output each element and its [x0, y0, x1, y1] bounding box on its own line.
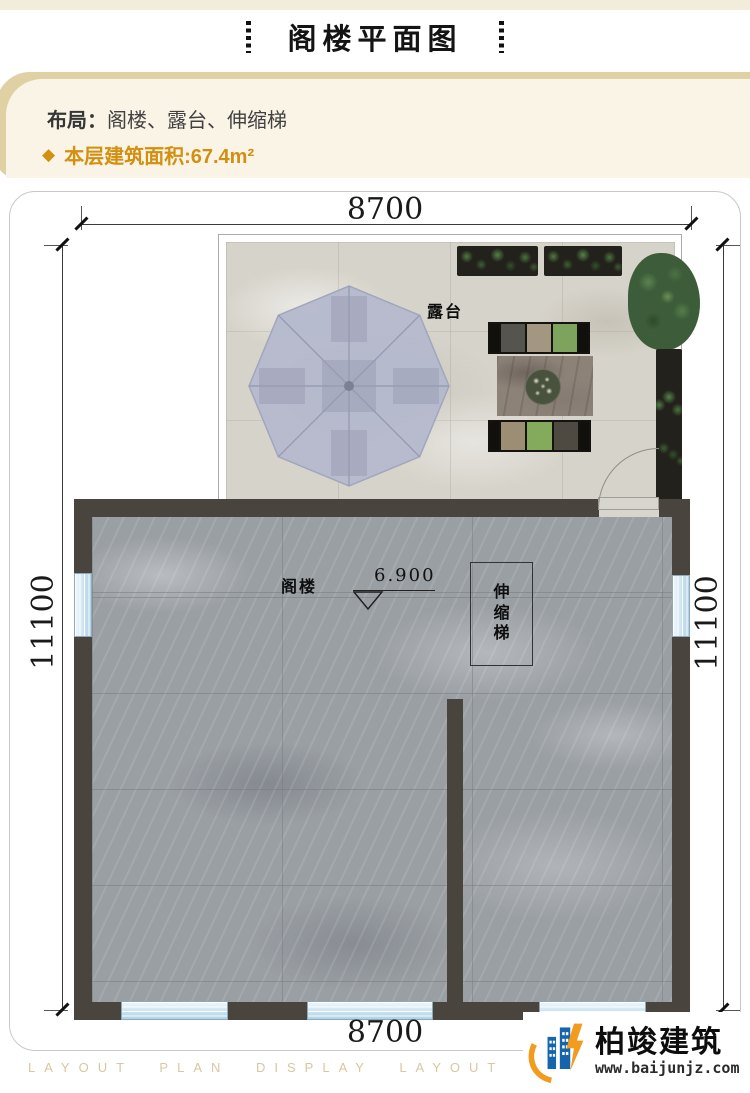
bench-cushion [554, 422, 578, 450]
layout-line: 布局：阁楼、露台、伸缩梯 [47, 104, 287, 133]
bench-cushion [501, 422, 525, 450]
bench-armrest [490, 324, 499, 352]
bench-armrest [580, 422, 589, 450]
bench-cushion [527, 422, 551, 450]
vertical-planter [656, 349, 682, 509]
top-accent-strip [0, 0, 750, 10]
extension-line [44, 1010, 68, 1011]
diamond-icon: ◆ [42, 146, 55, 163]
umbrella-canopy [249, 286, 449, 486]
page-title: 阁楼平面图 [287, 16, 462, 58]
interior-wall [447, 699, 463, 1002]
extension-line [691, 206, 692, 230]
terrace-label: 露台 [427, 298, 463, 322]
planter-box [544, 246, 622, 276]
attic-label: 阁楼 [281, 573, 317, 597]
brand-text: 柏竣建筑 www.baijunjz.com [595, 1027, 740, 1077]
window-bottom-1 [121, 1001, 228, 1020]
extension-line [81, 206, 82, 230]
layout-value: 阁楼、露台、伸缩梯 [107, 110, 287, 132]
dimension-top: 8700 [300, 192, 470, 227]
window-right [672, 575, 690, 637]
brand-logo[interactable]: 柏竣建筑 www.baijunjz.com [523, 1012, 750, 1092]
window-left [74, 573, 92, 637]
ladder-label: 伸缩梯 [493, 583, 511, 645]
terrace-bench [488, 420, 591, 452]
brand-logo-icon [523, 1018, 591, 1086]
dimension-bottom: 8700 [300, 1015, 470, 1050]
telescopic-ladder-box: 伸缩梯 [470, 562, 533, 666]
bench-cushion [527, 324, 551, 352]
table-centerpiece [525, 369, 561, 405]
bench-armrest [490, 422, 499, 450]
bench-armrest [579, 324, 588, 352]
elevation-triangle-icon [353, 591, 385, 611]
terrace-tree [628, 253, 700, 350]
dimension-right: 11100 [690, 563, 722, 683]
area-line: ◆ 本层建筑面积:67.4m² [42, 140, 254, 169]
extension-line [44, 245, 68, 246]
brand-url[interactable]: www.baijunjz.com [595, 1059, 740, 1077]
title-row: 阁楼平面图 [0, 14, 750, 60]
bench-cushion [553, 324, 577, 352]
elevation-value: 6.900 [374, 565, 436, 586]
title-dash-left-icon [246, 21, 251, 53]
patio-umbrella [247, 284, 451, 488]
planter-box [457, 246, 538, 276]
layout-label: 布局： [47, 110, 107, 132]
terrace-bench [488, 322, 590, 354]
area-label: 本层建筑面积:67.4m² [64, 140, 254, 169]
brand-name: 柏竣建筑 [595, 1027, 740, 1059]
floor-plan-page: 阁楼平面图 布局：阁楼、露台、伸缩梯 ◆ 本层建筑面积:67.4m² [0, 0, 750, 1093]
dimension-top-line [81, 224, 691, 225]
title-dash-right-icon [499, 21, 504, 53]
bench-cushion [501, 324, 525, 352]
dimension-left-line [62, 245, 63, 1010]
dimension-left: 11100 [26, 562, 58, 682]
